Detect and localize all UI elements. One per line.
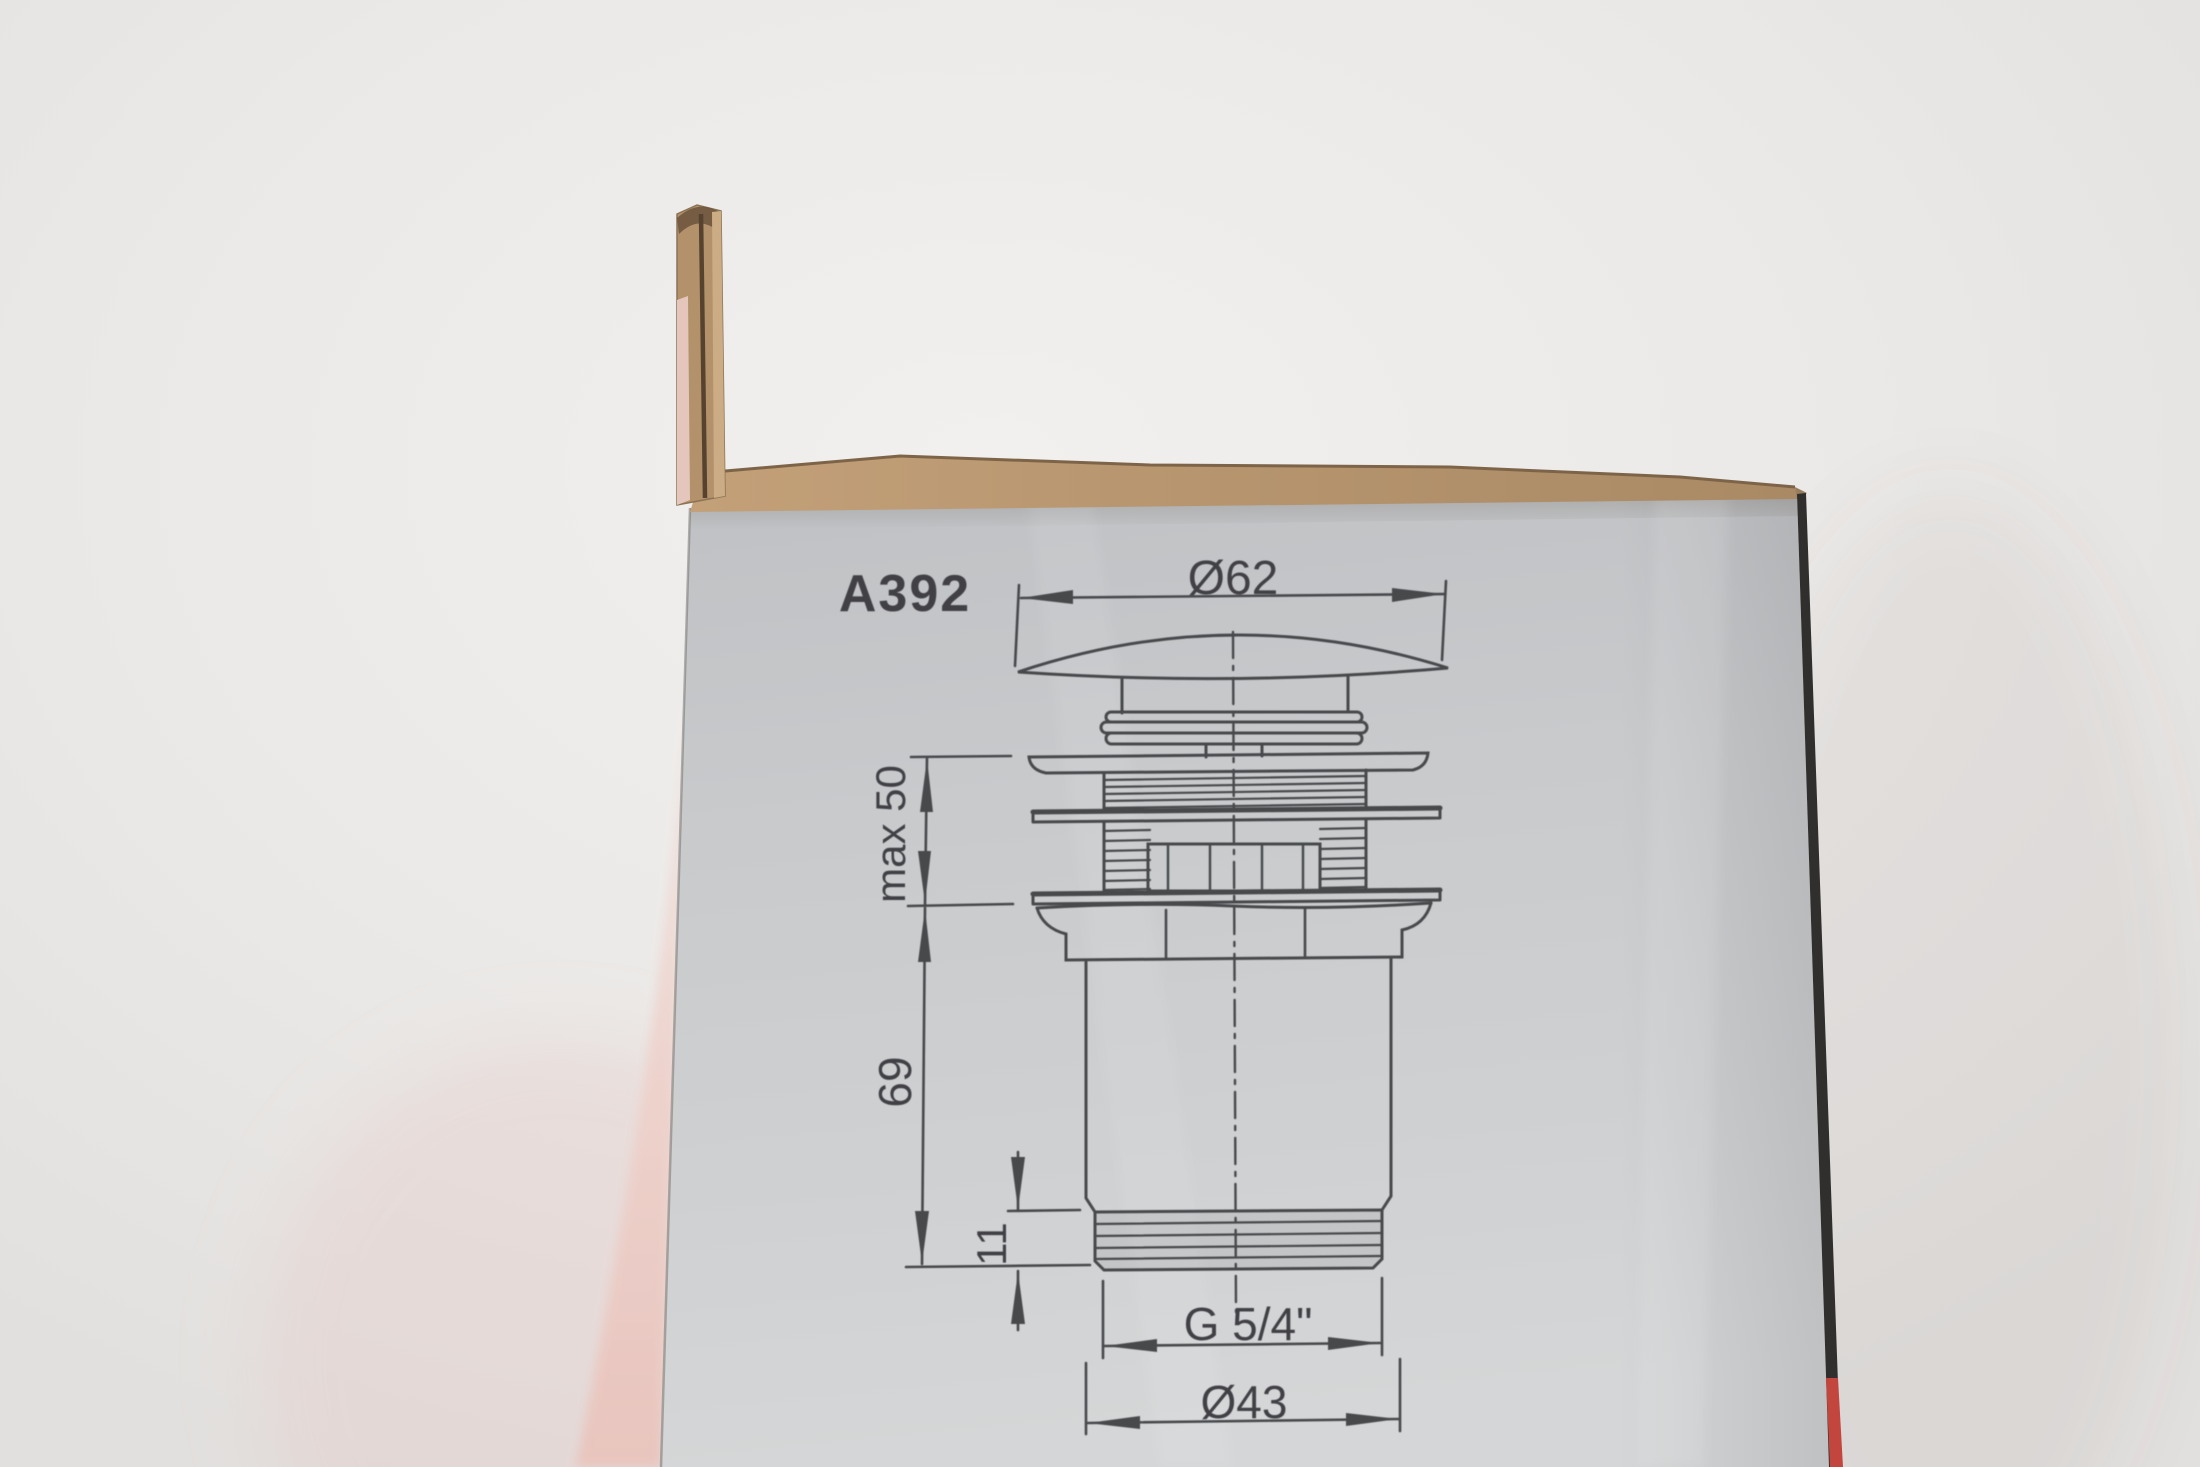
photo-canvas: A392 Ø62 max 50 69 11 G 5/4" Ø43 bbox=[0, 0, 2200, 1467]
box-top-flap bbox=[677, 205, 725, 505]
product-code-label: A392 bbox=[839, 565, 971, 623]
product-photo-scene: A392 Ø62 max 50 69 11 G 5/4" Ø43 bbox=[0, 0, 2200, 1467]
dim-max-thickness-label: max 50 bbox=[867, 765, 914, 903]
bottom-thread-outline bbox=[1095, 1210, 1382, 1270]
dim-thread-length-label: 11 bbox=[968, 1222, 1015, 1266]
dim-thread-size-label: G 5/4" bbox=[1184, 1298, 1313, 1350]
product-box bbox=[576, 205, 1843, 1467]
flap-pink-print-edge bbox=[677, 296, 690, 505]
dim-body-length-label: 69 bbox=[869, 1056, 921, 1107]
dim-outlet-diameter-label: Ø43 bbox=[1201, 1376, 1288, 1428]
dim-cap-diameter-label: Ø62 bbox=[1188, 552, 1279, 605]
